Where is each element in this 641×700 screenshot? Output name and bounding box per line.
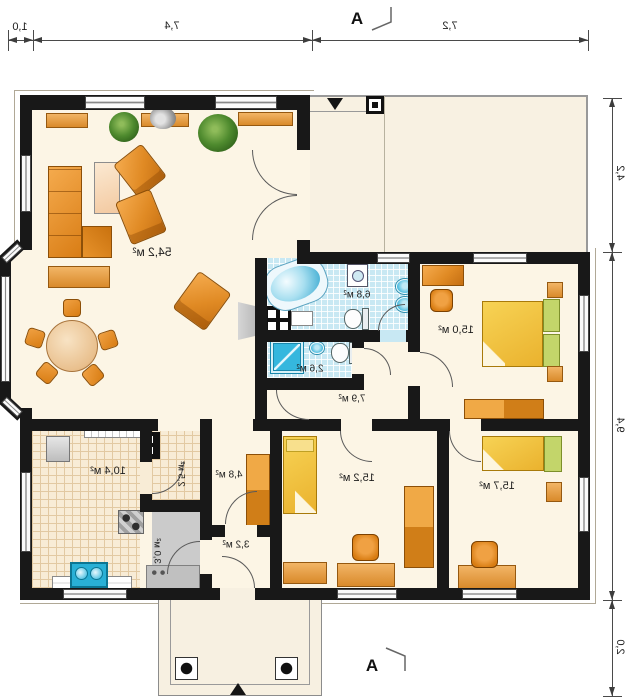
opening [158,419,200,431]
door-gap [225,525,257,537]
window [85,96,145,109]
eave-line [14,90,15,248]
wall [297,95,310,150]
dim-label: 2,0 [614,639,626,654]
dim-arrow-icon [303,37,312,43]
entrance-arrow-icon [327,98,343,110]
desk [337,563,395,587]
dim-label: 7,4 [164,20,179,32]
sideboard [48,266,110,288]
room-label-boiler: 3,0 м² [152,538,163,564]
shelf [238,112,293,126]
kitchen-sink [70,562,108,588]
door-gap [408,352,420,386]
dim-label: 7,2 [442,20,457,32]
window [579,477,589,532]
window [1,276,10,382]
wall [140,500,212,512]
dining-chair [63,299,81,317]
door-gap [450,419,481,431]
wardrobe [404,486,434,568]
dim-arrow-icon [609,591,615,600]
room-label-bedroom2: 15,2 м² [339,472,375,484]
canopy-line [310,111,366,112]
entrance-arrow-icon [230,683,246,695]
sofa [82,226,112,258]
dim-label: 9,4 [614,417,626,432]
bed-fold [295,488,316,513]
fireplace-shelf [291,311,313,326]
desk [422,265,464,286]
sink-icon [310,342,324,354]
vase-icon [150,107,176,129]
dim-arrow-icon [609,98,615,107]
dim-label: 4,2 [614,165,626,180]
desk [458,565,516,589]
wall [408,258,420,419]
wall [20,419,590,431]
eave-line [20,603,158,604]
dim-arrow-icon [33,37,42,43]
section-mark-label: A [366,656,378,676]
desk-chair [430,289,453,312]
sink-basin [75,567,88,580]
bed-pillow [286,439,314,452]
porch-column [275,657,298,680]
terrace-column [366,96,384,114]
door-gap [140,462,152,494]
dim-tick [603,696,622,697]
eave-line [14,90,314,91]
nightstand [546,482,562,502]
wall [297,252,590,264]
plant-icon [198,114,238,152]
eave-line [595,248,596,604]
bed-pillow [543,299,560,332]
fridge [46,436,70,462]
window [579,295,589,352]
bed-fold [483,449,505,470]
stove [118,510,144,534]
dim-arrow-icon [579,37,588,43]
section-mark-icon [368,4,400,38]
toilet-icon [331,343,349,363]
dim-arrow-icon [609,243,615,252]
room-label-bathroom: 6,8 м² [344,290,371,301]
dimension-line [8,40,588,41]
window [337,589,397,599]
room-label-pantry: 2,5 м² [176,461,187,487]
terrace-edge [586,95,588,252]
door-gap [352,348,364,374]
bed-pillow [543,334,560,367]
shelf [46,113,88,128]
nightstand [547,282,563,298]
room-label-kitchen: 10,4 м² [90,465,126,477]
room-label-hallway: 7,9 м² [339,394,366,405]
washing-machine [347,264,368,287]
section-mark-label: A [351,9,363,29]
toilet-icon [344,309,362,329]
dim-tick [588,30,589,51]
room-label-hall2: 4,8 м² [216,470,243,481]
terrace-edge [310,95,588,97]
window [462,589,517,599]
section-mark-icon [382,640,414,674]
bed-fold [483,337,505,366]
opening [212,419,253,431]
nightstand [547,366,563,382]
window [63,589,127,599]
wall [255,258,267,420]
window [377,253,410,263]
plant-icon [109,112,139,142]
sofa [48,166,82,258]
wall [267,378,364,390]
window [473,253,527,263]
room-label-bedroom3: 15,7 м² [479,480,515,492]
room-label-bedroom1: 15,0 м² [438,324,474,336]
window [215,96,277,109]
desk-chair [352,534,379,561]
wall [437,431,449,588]
washer-drum [352,270,364,282]
dim-label: 1,0 [12,21,27,33]
terrace-floor [310,95,588,252]
terrace-divider [384,96,385,252]
wall [200,574,212,588]
dim-arrow-icon [609,687,615,696]
wall [200,431,212,540]
eave-line [322,603,595,604]
shelf [283,562,327,584]
window [21,155,31,212]
door-gap [380,330,406,342]
wardrobe [464,399,544,419]
room-label-wc: 2,6 м² [297,364,324,375]
desk-chair [471,541,498,568]
sink-basin [90,567,103,580]
toilet-tank [362,308,369,330]
dim-arrow-icon [8,37,17,43]
door-gap [341,419,372,431]
dim-arrow-icon [24,37,33,43]
room-label-vestibule: 3,2 м² [223,540,250,551]
dim-arrow-icon [609,600,615,609]
bed-pillow [544,436,562,472]
window [21,472,31,552]
door-gap [220,588,255,600]
room-label-living: 54,2 м² [133,245,172,259]
floor-plan: 54,2 м² 6,8 м² 2,6 м² 15,0 м² 7,9 м² 10,… [0,0,641,700]
porch-column [175,657,198,680]
wall [270,431,282,588]
dim-arrow-icon [609,252,615,261]
bathtub-basin [266,259,325,307]
dim-arrow-icon [312,37,321,43]
wall [297,240,310,255]
